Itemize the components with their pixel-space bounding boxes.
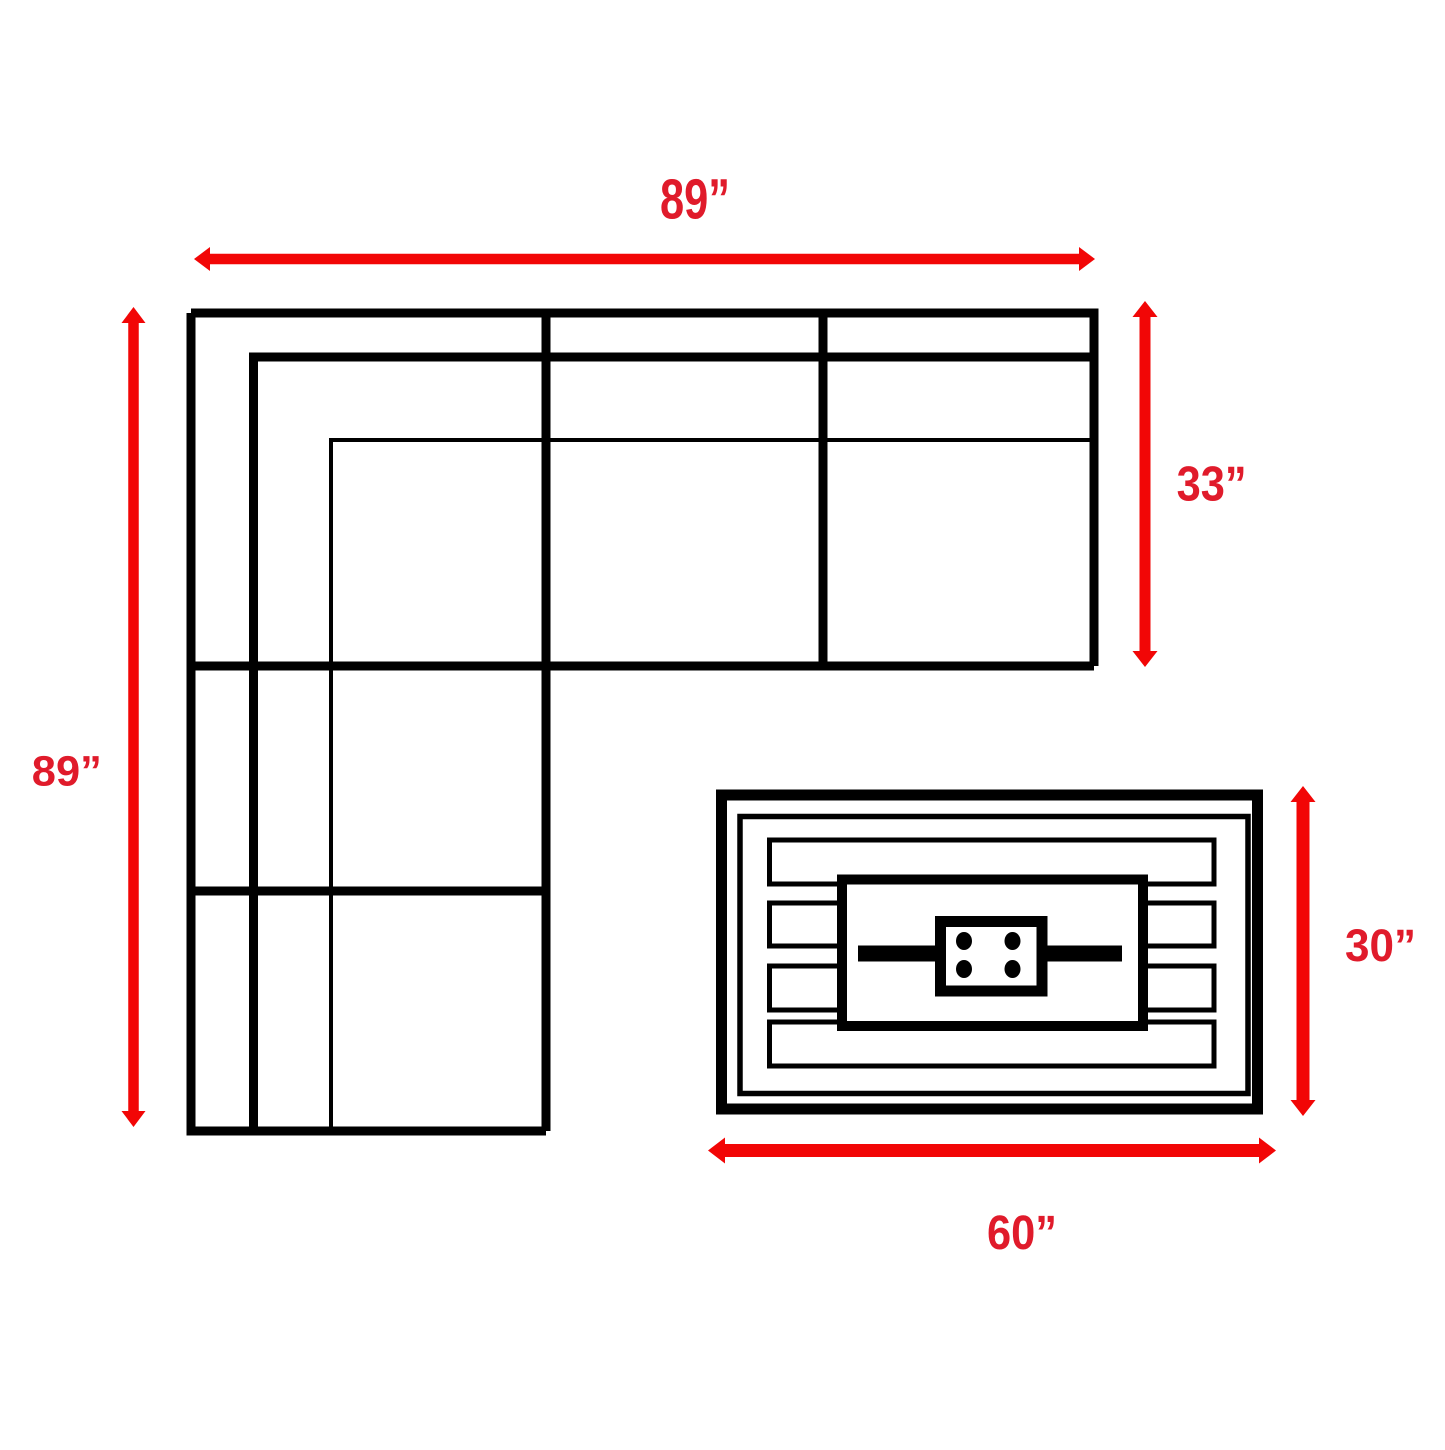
- svg-text:33”: 33”: [1177, 457, 1247, 511]
- svg-text:89”: 89”: [660, 168, 730, 232]
- svg-text:89”: 89”: [32, 747, 102, 795]
- svg-text:60”: 60”: [987, 1207, 1057, 1260]
- svg-text:30”: 30”: [1345, 920, 1416, 971]
